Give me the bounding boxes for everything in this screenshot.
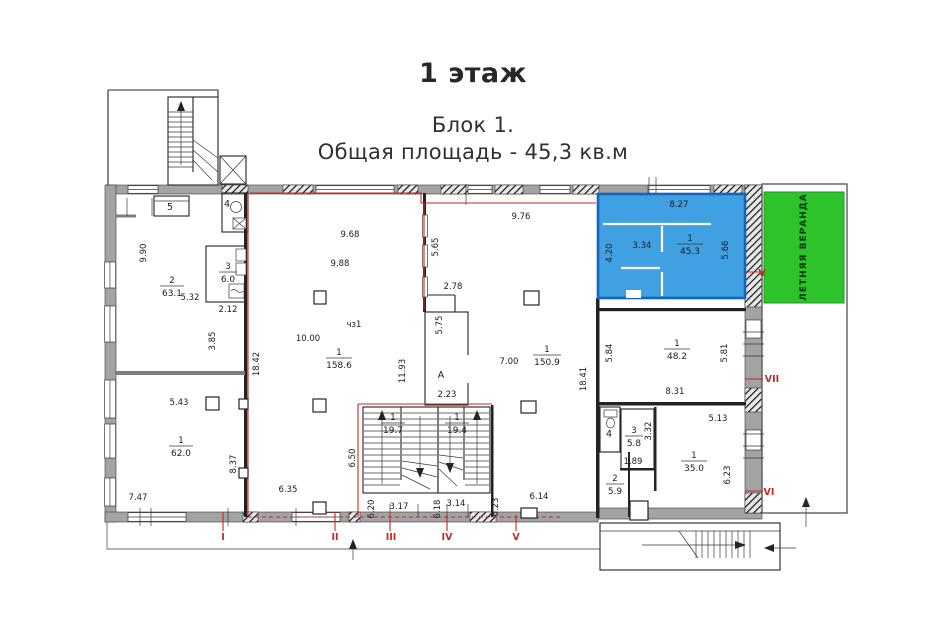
dim-6-14: 6.14 bbox=[530, 492, 549, 502]
block-subtitle: Блок 1. bbox=[432, 113, 514, 137]
dim-5-66: 5.66 bbox=[721, 241, 731, 260]
dim-11-93: 11.93 bbox=[398, 359, 408, 383]
svg-text:5.8: 5.8 bbox=[627, 439, 642, 449]
stair-19-4: 1 19.4 bbox=[445, 413, 469, 436]
wc-icon bbox=[607, 418, 615, 428]
dim-18-41: 18.41 bbox=[579, 367, 589, 391]
room-5-8: 3 5.8 bbox=[625, 426, 643, 449]
svg-text:45.3: 45.3 bbox=[680, 247, 700, 257]
veranda: ЛЕТНЯЯ ВЕРАНДА bbox=[762, 184, 847, 513]
room-6-0: 3 6.0 bbox=[219, 262, 237, 285]
floor-plan-drawing: 1 этаж Блок 1. Общая площадь - 45,3 кв.м bbox=[0, 0, 933, 640]
axis-marker-6: VI bbox=[764, 487, 775, 498]
dim-6-20: 6.20 bbox=[367, 500, 377, 519]
dim-7-00: 7.00 bbox=[500, 357, 519, 367]
dim-4-20: 4.20 bbox=[605, 244, 615, 263]
room-4-top-label: 4 bbox=[224, 199, 230, 210]
axis-marker-8: V bbox=[758, 268, 766, 279]
dim-2-78: 2.78 bbox=[444, 282, 463, 292]
dim-7-47: 7.47 bbox=[129, 493, 148, 503]
svg-text:1: 1 bbox=[454, 413, 459, 423]
dim-5-75: 5.75 bbox=[435, 316, 445, 335]
svg-text:1: 1 bbox=[390, 413, 395, 423]
room-ch31-label: чз1 bbox=[347, 320, 362, 330]
room-a-label: А bbox=[438, 370, 445, 381]
dim-6-23-right: 6.23 bbox=[723, 466, 733, 485]
svg-text:63.1: 63.1 bbox=[162, 289, 182, 299]
svg-text:5.9: 5.9 bbox=[608, 487, 623, 497]
svg-text:158.6: 158.6 bbox=[326, 361, 352, 371]
elevator-icon bbox=[220, 156, 246, 184]
dim-2-23: 2.23 bbox=[438, 390, 457, 400]
dim-8-31: 8.31 bbox=[666, 387, 685, 397]
axis-marker-1: I bbox=[221, 532, 225, 543]
axis-marker-7: VII bbox=[765, 374, 779, 385]
dim-6-35: 6.35 bbox=[279, 485, 298, 495]
dim-5-13: 5.13 bbox=[709, 414, 728, 424]
dim-3-14: 3.14 bbox=[447, 499, 466, 509]
dim-10-00: 10.00 bbox=[296, 334, 320, 344]
room-6-0-walls bbox=[206, 246, 246, 302]
svg-text:150.9: 150.9 bbox=[534, 358, 560, 368]
plot-boundary bbox=[107, 522, 600, 560]
room-63-1: 2 63.1 bbox=[160, 276, 184, 299]
stove-icon bbox=[231, 202, 242, 213]
svg-text:19.7: 19.7 bbox=[383, 426, 403, 436]
svg-text:1: 1 bbox=[544, 345, 549, 355]
dim-18-42: 18.42 bbox=[252, 352, 262, 376]
svg-text:2: 2 bbox=[169, 276, 174, 286]
room-48-2: 1 48.2 bbox=[664, 339, 690, 362]
dim-5-65: 5.65 bbox=[431, 238, 441, 257]
svg-text:48.2: 48.2 bbox=[667, 352, 687, 362]
dim-3-17: 3.17 bbox=[390, 502, 409, 512]
axis-marker-3: III bbox=[386, 532, 397, 543]
axis-marker-2: II bbox=[331, 532, 338, 543]
svg-text:1: 1 bbox=[336, 348, 341, 358]
dim-3-32: 3.32 bbox=[644, 422, 654, 441]
svg-text:1: 1 bbox=[674, 339, 679, 349]
dim-8-37: 8.37 bbox=[229, 455, 239, 474]
svg-text:3: 3 bbox=[225, 262, 230, 272]
axis-marker-5: V bbox=[512, 532, 520, 543]
room-150-9: 1 150.9 bbox=[533, 345, 561, 368]
room-62-0: 1 62.0 bbox=[169, 436, 193, 459]
room-5-9: 2 5.9 bbox=[606, 474, 624, 497]
room-158-6: 1 158.6 bbox=[326, 348, 352, 371]
veranda-label: ЛЕТНЯЯ ВЕРАНДА bbox=[799, 193, 809, 300]
dim-2-12: 2.12 bbox=[219, 305, 238, 315]
svg-text:35.0: 35.0 bbox=[684, 464, 704, 474]
dim-5-32: 5.32 bbox=[181, 293, 200, 303]
dim-5-81: 5.81 bbox=[720, 344, 730, 363]
dim-5-84: 5.84 bbox=[605, 344, 615, 363]
dim-9-88: 9.88 bbox=[331, 259, 350, 269]
dim-3-85: 3.85 bbox=[208, 332, 218, 351]
annex-staircase bbox=[108, 90, 218, 185]
svg-text:6.0: 6.0 bbox=[221, 275, 236, 285]
dim-8-27: 8.27 bbox=[670, 200, 689, 210]
dim-6-23-left: 6.23 bbox=[491, 498, 501, 517]
total-area-subtitle: Общая площадь - 45,3 кв.м bbox=[318, 140, 628, 164]
room-5-label: 5 bbox=[167, 202, 173, 213]
axis-marker-4: IV bbox=[442, 532, 454, 543]
dim-9-68: 9.68 bbox=[341, 230, 360, 240]
stair-core-1 bbox=[363, 407, 438, 493]
room-4-wc-label: 4 bbox=[606, 429, 612, 440]
svg-text:1: 1 bbox=[687, 234, 692, 244]
title-block: 1 этаж Блок 1. Общая площадь - 45,3 кв.м bbox=[318, 58, 628, 164]
svg-text:19.4: 19.4 bbox=[447, 426, 467, 436]
dim-9-90: 9.90 bbox=[139, 244, 149, 263]
dim-6-50: 6.50 bbox=[348, 449, 358, 468]
svg-text:1: 1 bbox=[691, 451, 696, 461]
svg-text:2: 2 bbox=[612, 474, 617, 484]
dim-3-34: 3.34 bbox=[633, 241, 652, 251]
svg-text:62.0: 62.0 bbox=[171, 449, 191, 459]
dim-9-76: 9.76 bbox=[512, 212, 531, 222]
stair-core-2 bbox=[438, 407, 490, 493]
floor-title: 1 этаж bbox=[419, 58, 527, 89]
dim-1-89: 1.89 bbox=[624, 457, 643, 467]
room-35-0: 1 35.0 bbox=[681, 451, 707, 474]
dim-6-18: 6.18 bbox=[433, 500, 443, 519]
svg-text:1: 1 bbox=[178, 436, 183, 446]
dim-5-43: 5.43 bbox=[170, 398, 189, 408]
svg-text:3: 3 bbox=[631, 426, 636, 436]
